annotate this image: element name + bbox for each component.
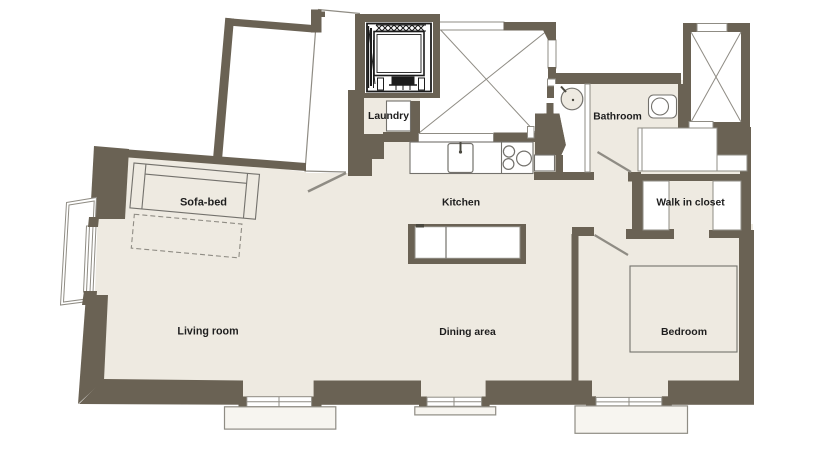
svg-text:Kitchen: Kitchen bbox=[442, 198, 480, 209]
svg-text:Walk in closet: Walk in closet bbox=[656, 198, 725, 209]
svg-text:Bedroom: Bedroom bbox=[661, 326, 707, 338]
svg-text:Bathroom: Bathroom bbox=[593, 112, 642, 123]
svg-text:Laundry: Laundry bbox=[368, 111, 409, 122]
svg-text:Dining area: Dining area bbox=[439, 327, 496, 338]
svg-text:Living room: Living room bbox=[177, 326, 238, 338]
svg-text:Sofa-bed: Sofa-bed bbox=[180, 197, 227, 209]
